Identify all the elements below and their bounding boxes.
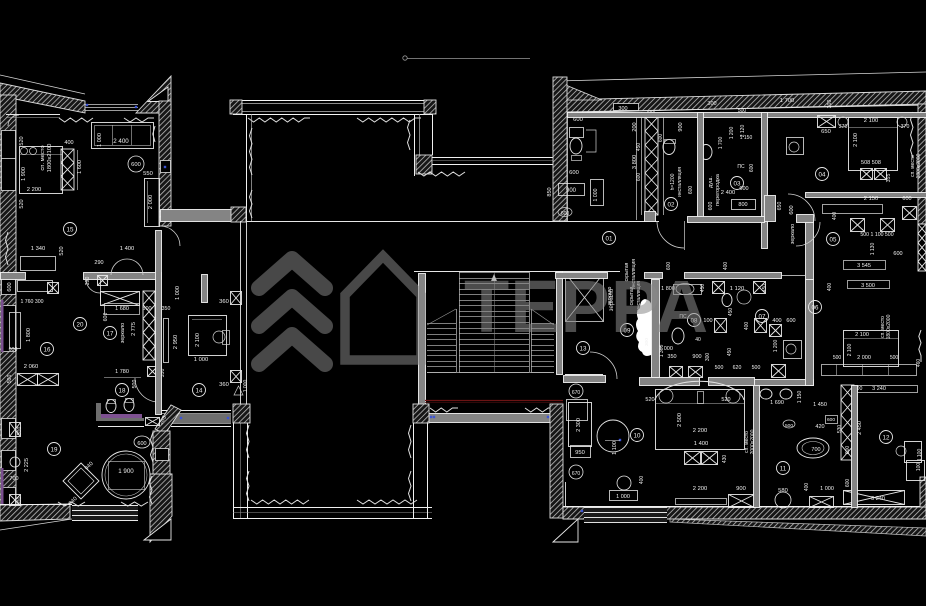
svg-text:200: 200: [632, 122, 638, 131]
svg-text:900: 900: [566, 188, 577, 194]
svg-text:1 100: 1 100: [612, 441, 618, 455]
svg-text:ПС: ПС: [737, 164, 745, 170]
svg-text:100: 100: [916, 463, 922, 472]
svg-text:2 000: 2 000: [857, 355, 871, 361]
svg-text:400: 400: [832, 212, 838, 221]
svg-text:1 200: 1 200: [773, 340, 779, 353]
svg-text:3 800: 3 800: [632, 155, 638, 170]
svg-text:430: 430: [722, 455, 728, 464]
svg-text:700: 700: [9, 476, 18, 482]
svg-text:1 000: 1 000: [820, 486, 834, 492]
svg-text:520: 520: [19, 136, 25, 145]
svg-text:1 400: 1 400: [694, 441, 709, 447]
svg-text:520: 520: [59, 246, 65, 255]
svg-text:450: 450: [727, 348, 733, 357]
svg-text:670: 670: [572, 390, 581, 396]
svg-text:01: 01: [606, 235, 613, 242]
svg-text:1 000: 1 000: [194, 357, 209, 363]
svg-text:600: 600: [786, 318, 795, 324]
svg-text:300: 300: [827, 100, 833, 109]
svg-text:400: 400: [804, 483, 810, 492]
svg-text:520: 520: [19, 199, 25, 208]
svg-text:04: 04: [819, 171, 826, 178]
svg-text:500: 500: [17, 427, 23, 436]
svg-text:2 775: 2 775: [131, 322, 137, 336]
svg-text:1 450: 1 450: [813, 402, 827, 408]
svg-text:1 900: 1 900: [118, 468, 134, 475]
svg-text:сп. место: сп. место: [40, 145, 46, 170]
svg-text:17: 17: [107, 330, 114, 337]
svg-text:2 100: 2 100: [847, 344, 853, 357]
svg-text:500: 500: [833, 355, 842, 361]
svg-text:19: 19: [51, 446, 58, 453]
svg-text:1 340: 1 340: [31, 246, 46, 252]
svg-text:1 130: 1 130: [870, 243, 876, 256]
svg-text:1 200: 1 200: [729, 127, 735, 140]
svg-text:508 508: 508 508: [861, 160, 881, 166]
svg-text:1 800: 1 800: [26, 328, 32, 342]
svg-text:1 760 300: 1 760 300: [20, 299, 43, 305]
svg-text:2 100: 2 100: [864, 118, 879, 124]
svg-text:600: 600: [569, 170, 579, 176]
svg-text:инсталляция: инсталляция: [677, 167, 683, 197]
svg-text:600: 600: [7, 282, 13, 291]
svg-text:10: 10: [634, 432, 641, 439]
svg-text:360: 360: [219, 299, 229, 305]
svg-text:1 150: 1 150: [797, 391, 803, 404]
svg-text:1 900: 1 900: [21, 167, 27, 181]
svg-text:600: 600: [827, 417, 835, 423]
svg-text:600: 600: [845, 479, 851, 488]
svg-text:1 780: 1 780: [115, 369, 129, 375]
svg-text:2 150: 2 150: [864, 196, 879, 202]
svg-text:1800х2000: 1800х2000: [916, 153, 922, 178]
svg-text:390: 390: [85, 277, 91, 286]
svg-text:12: 12: [883, 434, 890, 441]
svg-text:3 240: 3 240: [872, 386, 886, 392]
svg-text:850: 850: [547, 187, 553, 196]
svg-text:500: 500: [738, 108, 747, 114]
svg-text:650: 650: [777, 202, 783, 211]
svg-text:400: 400: [827, 283, 833, 292]
svg-text:1 120: 1 120: [730, 286, 745, 292]
svg-text:350: 350: [162, 306, 171, 312]
svg-text:450: 450: [728, 308, 734, 317]
svg-text:800: 800: [738, 202, 747, 208]
svg-text:2 100: 2 100: [855, 332, 869, 338]
svg-text:15: 15: [67, 226, 74, 233]
svg-text:2 000: 2 000: [148, 195, 154, 210]
svg-text:350: 350: [667, 354, 676, 360]
svg-text:1 000: 1 000: [97, 133, 103, 147]
svg-text:900: 900: [736, 486, 746, 492]
svg-text:h=1200: h=1200: [670, 173, 676, 190]
svg-text:душ.: душ.: [708, 176, 714, 188]
svg-text:16: 16: [44, 346, 51, 353]
svg-text:2 100: 2 100: [853, 133, 859, 147]
svg-text:1800х2000: 1800х2000: [886, 314, 892, 339]
svg-text:400: 400: [744, 322, 750, 331]
svg-text:зеркало: зеркало: [120, 323, 126, 344]
svg-text:ТЕРРА: ТЕРРА: [464, 265, 709, 348]
svg-text:18: 18: [119, 387, 126, 394]
svg-text:2 200: 2 200: [693, 486, 708, 492]
svg-text:1 680: 1 680: [115, 306, 129, 312]
svg-text:1 100: 1 100: [917, 449, 923, 462]
svg-text:400: 400: [639, 476, 645, 485]
svg-text:1 700: 1 700: [718, 137, 724, 150]
svg-text:600: 600: [636, 173, 642, 182]
svg-text:600: 600: [902, 196, 911, 202]
svg-text:2 200: 2 200: [693, 428, 708, 434]
svg-text:20: 20: [77, 321, 84, 328]
svg-text:300: 300: [705, 353, 711, 362]
svg-text:650: 650: [821, 129, 831, 135]
svg-text:400: 400: [64, 140, 73, 146]
svg-text:550: 550: [143, 171, 153, 177]
svg-text:1 000: 1 000: [616, 494, 630, 500]
svg-text:600: 600: [749, 164, 755, 173]
svg-text:600: 600: [9, 347, 18, 353]
svg-text:400: 400: [772, 318, 781, 324]
svg-text:600: 600: [137, 441, 146, 447]
svg-text:290: 290: [94, 260, 103, 266]
svg-text:700: 700: [811, 447, 820, 453]
svg-text:520: 520: [721, 397, 730, 403]
svg-text:500 1 100 500: 500 1 100 500: [860, 232, 893, 238]
svg-text:2 950: 2 950: [173, 335, 179, 350]
svg-text:500: 500: [785, 423, 793, 429]
svg-text:300: 300: [618, 106, 627, 112]
svg-text:05: 05: [830, 236, 837, 243]
svg-text:2 200: 2 200: [27, 187, 42, 193]
svg-text:600: 600: [17, 497, 23, 506]
svg-text:1 690: 1 690: [770, 400, 784, 406]
svg-text:520: 520: [645, 397, 654, 403]
svg-text:06: 06: [812, 304, 819, 311]
svg-text:620: 620: [733, 365, 742, 371]
svg-text:360: 360: [219, 382, 229, 388]
svg-text:600: 600: [658, 134, 664, 143]
svg-text:600: 600: [561, 211, 570, 217]
svg-text:600: 600: [131, 162, 141, 168]
svg-text:2 500: 2 500: [677, 413, 683, 427]
svg-text:2 060: 2 060: [24, 364, 39, 370]
svg-text:1 700: 1 700: [780, 98, 795, 104]
svg-text:1800х2100: 1800х2100: [47, 144, 53, 173]
svg-text:1 400: 1 400: [120, 246, 135, 252]
svg-text:2 100: 2 100: [195, 333, 201, 347]
svg-text:зеркало: зеркало: [790, 224, 796, 245]
svg-text:900: 900: [692, 354, 701, 360]
svg-text:600: 600: [103, 313, 109, 322]
svg-text:500: 500: [752, 365, 761, 371]
svg-text:2 120: 2 120: [740, 125, 746, 138]
svg-text:02: 02: [668, 201, 675, 208]
svg-text:500: 500: [890, 355, 899, 361]
svg-text:14: 14: [196, 387, 203, 394]
svg-text:400: 400: [723, 262, 729, 271]
svg-text:900: 900: [678, 122, 684, 131]
svg-text:2 400: 2 400: [113, 138, 129, 145]
svg-text:2 400: 2 400: [721, 190, 736, 196]
svg-text:2 225: 2 225: [24, 458, 30, 472]
svg-text:1 000: 1 000: [175, 286, 181, 300]
svg-text:670: 670: [572, 471, 581, 477]
svg-text:950: 950: [575, 450, 585, 456]
svg-text:500: 500: [715, 365, 724, 371]
svg-text:3 500: 3 500: [861, 283, 875, 289]
svg-text:3 240: 3 240: [871, 496, 885, 502]
svg-text:11: 11: [780, 465, 787, 472]
svg-text:2 300: 2 300: [576, 418, 582, 432]
svg-text:500: 500: [7, 375, 13, 384]
svg-text:3 545: 3 545: [857, 263, 871, 269]
svg-text:420: 420: [815, 424, 824, 430]
svg-text:600: 600: [893, 251, 902, 257]
svg-text:600: 600: [789, 205, 795, 214]
svg-text:300: 300: [707, 101, 716, 107]
svg-text:600: 600: [688, 186, 694, 195]
svg-text:1 000: 1 000: [593, 188, 599, 201]
svg-text:07: 07: [759, 313, 766, 320]
svg-text:355: 355: [886, 174, 892, 183]
svg-text:600: 600: [739, 186, 748, 192]
svg-text:1 000: 1 000: [243, 380, 249, 393]
svg-text:450: 450: [636, 143, 642, 152]
svg-text:600: 600: [708, 202, 714, 211]
svg-text:1 600: 1 600: [77, 160, 83, 174]
